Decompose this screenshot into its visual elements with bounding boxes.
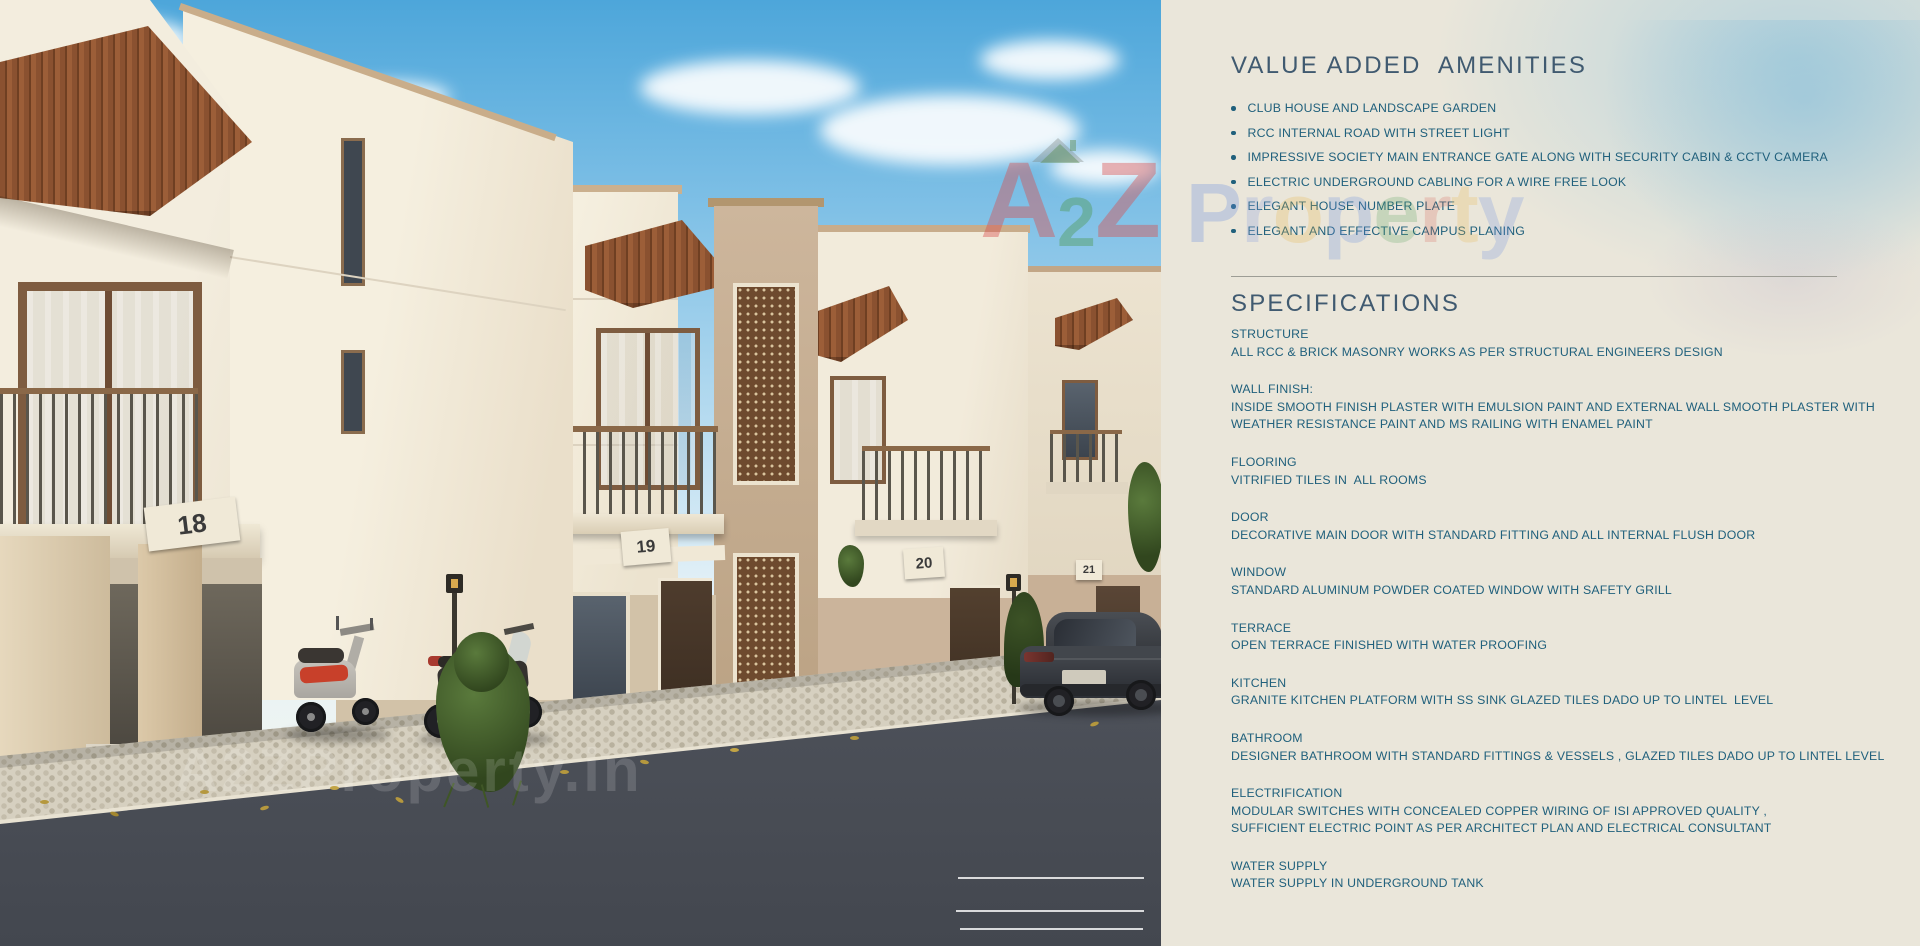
specifications-list: STRUCTUREALL RCC & BRICK MASONRY WORKS A…: [1231, 326, 1885, 913]
leaf: [40, 800, 49, 804]
spec-text-line: DECORATIVE MAIN DOOR WITH STANDARD FITTI…: [1231, 527, 1885, 545]
brochure-page: 21 20 19: [0, 0, 1920, 946]
balcony-railing: [1050, 430, 1122, 485]
spec-text-line: DESIGNER BATHROOM WITH STANDARD FITTINGS…: [1231, 748, 1885, 766]
amenity-item: ELECTRIC UNDERGROUND CABLING FOR A WIRE …: [1231, 170, 1828, 195]
bullet-dot: [1231, 106, 1236, 111]
cloud: [640, 60, 860, 115]
section-divider: [1231, 276, 1837, 277]
amenity-text: IMPRESSIVE SOCIETY MAIN ENTRANCE GATE AL…: [1248, 150, 1828, 164]
leaf: [730, 748, 739, 752]
car: [1020, 612, 1161, 716]
spec-label: DOOR: [1231, 509, 1885, 527]
bullet-dot: [1231, 229, 1236, 234]
spec-label: BATHROOM: [1231, 730, 1885, 748]
house-number-plate-21: 21: [1076, 560, 1102, 580]
car-rear-glass: [1054, 619, 1136, 647]
scooter-seat: [298, 648, 344, 663]
info-panel: VALUE ADDED AMENITIES CLUB HOUSE AND LAN…: [1161, 0, 1920, 946]
wheel-hub: [362, 708, 369, 715]
spec-section: DOORDECORATIVE MAIN DOOR WITH STANDARD F…: [1231, 509, 1885, 544]
balcony-railing: [862, 446, 990, 524]
spec-label: ELECTRIFICATION: [1231, 785, 1885, 803]
scooter-mirror: [336, 616, 339, 630]
slit-window: [341, 350, 365, 434]
spec-section: ELECTRIFICATIONMODULAR SWITCHES WITH CON…: [1231, 785, 1885, 838]
spec-text-line: GRANITE KITCHEN PLATFORM WITH SS SINK GL…: [1231, 692, 1885, 710]
bullet-dot: [1231, 131, 1236, 136]
amenity-item: RCC INTERNAL ROAD WITH STREET LIGHT: [1231, 121, 1828, 146]
amenity-text: ELECTRIC UNDERGROUND CABLING FOR A WIRE …: [1248, 175, 1627, 189]
spec-section: WATER SUPPLYWATER SUPPLY IN UNDERGROUND …: [1231, 858, 1885, 893]
lamp-glass: [1010, 578, 1017, 587]
lamp-lantern: [446, 574, 463, 593]
spec-text-line: VITRIFIED TILES IN ALL ROOMS: [1231, 472, 1885, 490]
amenity-text: ELEGANT HOUSE NUMBER PLATE: [1248, 199, 1456, 213]
spec-label: FLOORING: [1231, 454, 1885, 472]
balcony-slab: [855, 520, 997, 536]
spec-label: WALL FINISH:: [1231, 381, 1885, 399]
spec-label: WINDOW: [1231, 564, 1885, 582]
watermark-bottom: A2ZProperty.in: [175, 736, 643, 805]
bullet-dot: [1231, 180, 1236, 185]
spec-text-line: STANDARD ALUMINUM POWDER COATED WINDOW W…: [1231, 582, 1885, 600]
spec-section: BATHROOMDESIGNER BATHROOM WITH STANDARD …: [1231, 730, 1885, 765]
jali-screen-upper: [733, 283, 799, 485]
house-number: 19: [636, 536, 657, 558]
car-wheel: [1126, 680, 1156, 710]
scooter-accent: [300, 664, 349, 683]
house-number-plate-20: 20: [903, 547, 945, 580]
car-wheel: [1044, 686, 1074, 716]
spec-label: WATER SUPPLY: [1231, 858, 1885, 876]
lamp-lantern: [1006, 574, 1021, 591]
road-marking-line: [960, 928, 1143, 930]
bullet-dot: [1231, 155, 1236, 160]
road-marking-line: [958, 877, 1144, 879]
amenities-title: VALUE ADDED AMENITIES: [1231, 52, 1587, 80]
spec-section: KITCHENGRANITE KITCHEN PLATFORM WITH SS …: [1231, 675, 1885, 710]
spec-section: WALL FINISH:INSIDE SMOOTH FINISH PLASTER…: [1231, 381, 1885, 434]
house-number: 20: [915, 554, 933, 572]
balcony-slab: [1046, 482, 1128, 494]
spec-text-line: WATER SUPPLY IN UNDERGROUND TANK: [1231, 875, 1885, 893]
spec-section: WINDOWSTANDARD ALUMINUM POWDER COATED WI…: [1231, 564, 1885, 599]
spec-section: FLOORINGVITRIFIED TILES IN ALL ROOMS: [1231, 454, 1885, 489]
amenity-text: CLUB HOUSE AND LANDSCAPE GARDEN: [1248, 101, 1497, 115]
exterior-render-photo: 21 20 19: [0, 0, 1161, 946]
car-taillight: [1024, 652, 1054, 662]
road-marking-line: [956, 910, 1144, 912]
scooter: [286, 610, 390, 744]
spec-text-line: SUFFICIENT ELECTRIC POINT AS PER ARCHITE…: [1231, 820, 1885, 838]
wheel-hub: [1135, 689, 1147, 701]
spec-section: STRUCTUREALL RCC & BRICK MASONRY WORKS A…: [1231, 326, 1885, 361]
scooter-wheel: [296, 702, 326, 732]
bush-foliage: [454, 632, 509, 692]
spec-text-line: WEATHER RESISTANCE PAINT AND MS RAILING …: [1231, 416, 1885, 434]
spec-text-line: MODULAR SWITCHES WITH CONCEALED COPPER W…: [1231, 803, 1885, 821]
house-number-plate-19: 19: [621, 528, 672, 566]
spec-label: STRUCTURE: [1231, 326, 1885, 344]
spec-text-line: ALL RCC & BRICK MASONRY WORKS AS PER STR…: [1231, 344, 1885, 362]
wheel-hub: [1053, 695, 1065, 707]
amenity-item: IMPRESSIVE SOCIETY MAIN ENTRANCE GATE AL…: [1231, 145, 1828, 170]
scooter-wheel: [352, 698, 379, 725]
watermark-house-chimney-icon: [1070, 140, 1076, 151]
amenities-list: CLUB HOUSE AND LANDSCAPE GARDENRCC INTER…: [1231, 96, 1828, 243]
house-number: 18: [176, 507, 208, 541]
balcony-railing: [570, 426, 718, 523]
specifications-title: SPECIFICATIONS: [1231, 290, 1460, 318]
cloud: [980, 40, 1120, 80]
car-license-plate: [1062, 670, 1106, 685]
spec-section: TERRACEOPEN TERRACE FINISHED WITH WATER …: [1231, 620, 1885, 655]
spec-label: KITCHEN: [1231, 675, 1885, 693]
amenity-text: ELEGANT AND EFFECTIVE CAMPUS PLANING: [1248, 224, 1526, 238]
spec-text-line: OPEN TERRACE FINISHED WITH WATER PROOFIN…: [1231, 637, 1885, 655]
amenity-item: ELEGANT HOUSE NUMBER PLATE: [1231, 194, 1828, 219]
spec-label: TERRACE: [1231, 620, 1885, 638]
bullet-dot: [1231, 204, 1236, 209]
amenity-item: ELEGANT AND EFFECTIVE CAMPUS PLANING: [1231, 219, 1828, 244]
slit-window: [341, 138, 365, 286]
amenity-text: RCC INTERNAL ROAD WITH STREET LIGHT: [1248, 126, 1511, 140]
house-number: 21: [1083, 564, 1095, 576]
wheel-hub: [307, 713, 315, 721]
leaf: [850, 736, 859, 740]
scooter-mirror: [370, 618, 373, 630]
amenity-item: CLUB HOUSE AND LANDSCAPE GARDEN: [1231, 96, 1828, 121]
spec-text-line: INSIDE SMOOTH FINISH PLASTER WITH EMULSI…: [1231, 399, 1885, 417]
lamp-glass: [451, 579, 458, 588]
